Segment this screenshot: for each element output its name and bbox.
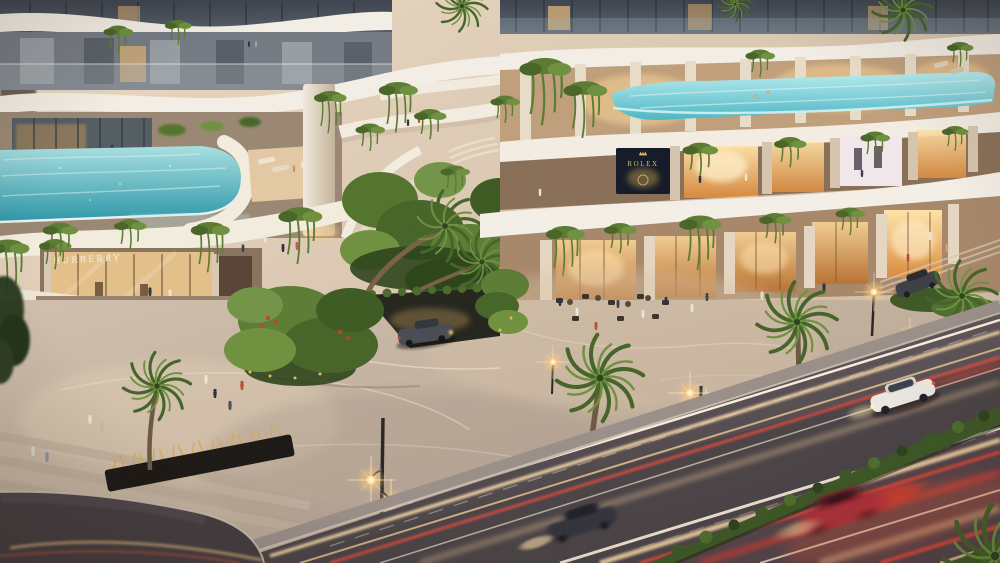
vignette (0, 0, 1000, 563)
architectural-rendering: BURBERRY (0, 0, 1000, 563)
